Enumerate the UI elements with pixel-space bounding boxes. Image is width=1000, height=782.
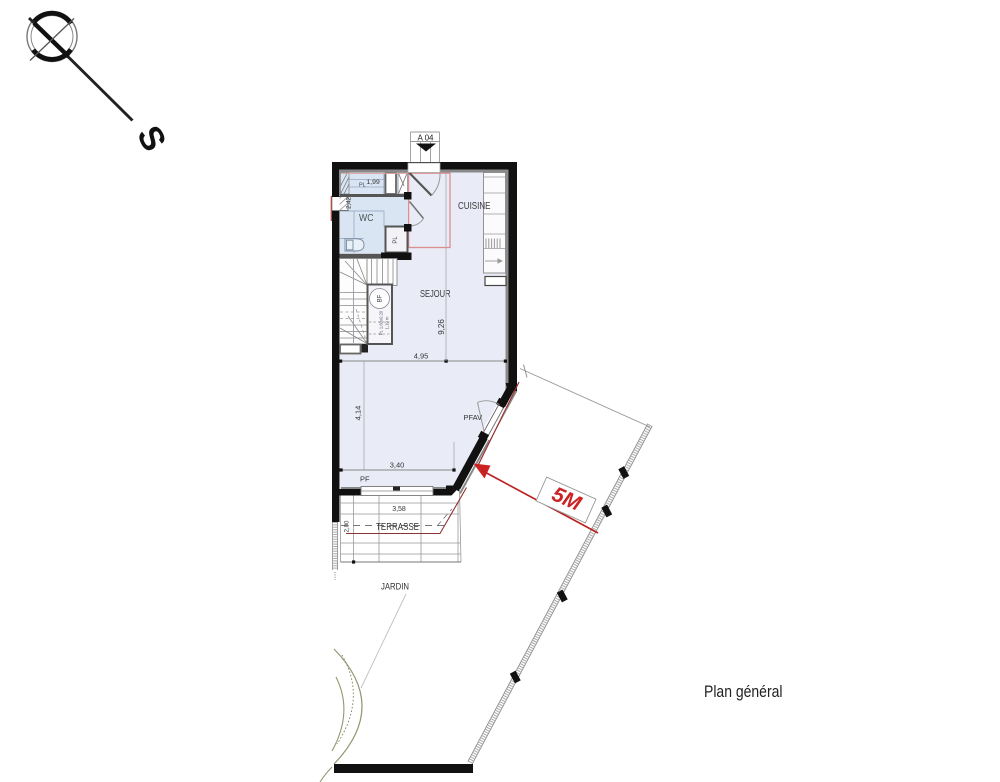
svg-text:PFAV: PFAV <box>464 413 483 422</box>
svg-text:PL: PL <box>359 183 366 189</box>
svg-text:1,19 m: 1,19 m <box>385 316 390 329</box>
svg-text:PL: PL <box>393 236 399 244</box>
svg-text:4,14: 4,14 <box>354 406 363 421</box>
svg-text:A 04: A 04 <box>417 133 434 142</box>
svg-text:WC: WC <box>359 212 374 224</box>
svg-text:2,42: 2,42 <box>347 197 353 209</box>
svg-text:3,58: 3,58 <box>392 506 406 513</box>
svg-text:9,26: 9,26 <box>437 319 446 335</box>
svg-text:4,95: 4,95 <box>414 352 429 361</box>
svg-text:TERRASSE: TERRASSE <box>376 521 419 533</box>
svg-text:1,99: 1,99 <box>367 179 380 186</box>
svg-text:3,40: 3,40 <box>390 461 405 470</box>
svg-text:CUISINE: CUISINE <box>458 201 491 212</box>
svg-text:PL 1,60x0,20: PL 1,60x0,20 <box>379 310 384 335</box>
svg-text:PF: PF <box>360 475 370 484</box>
svg-text:JARDIN: JARDIN <box>381 582 409 593</box>
svg-text:Plan général: Plan général <box>704 682 783 701</box>
svg-text:BF: BF <box>378 294 384 302</box>
svg-text:2,00: 2,00 <box>345 520 351 532</box>
